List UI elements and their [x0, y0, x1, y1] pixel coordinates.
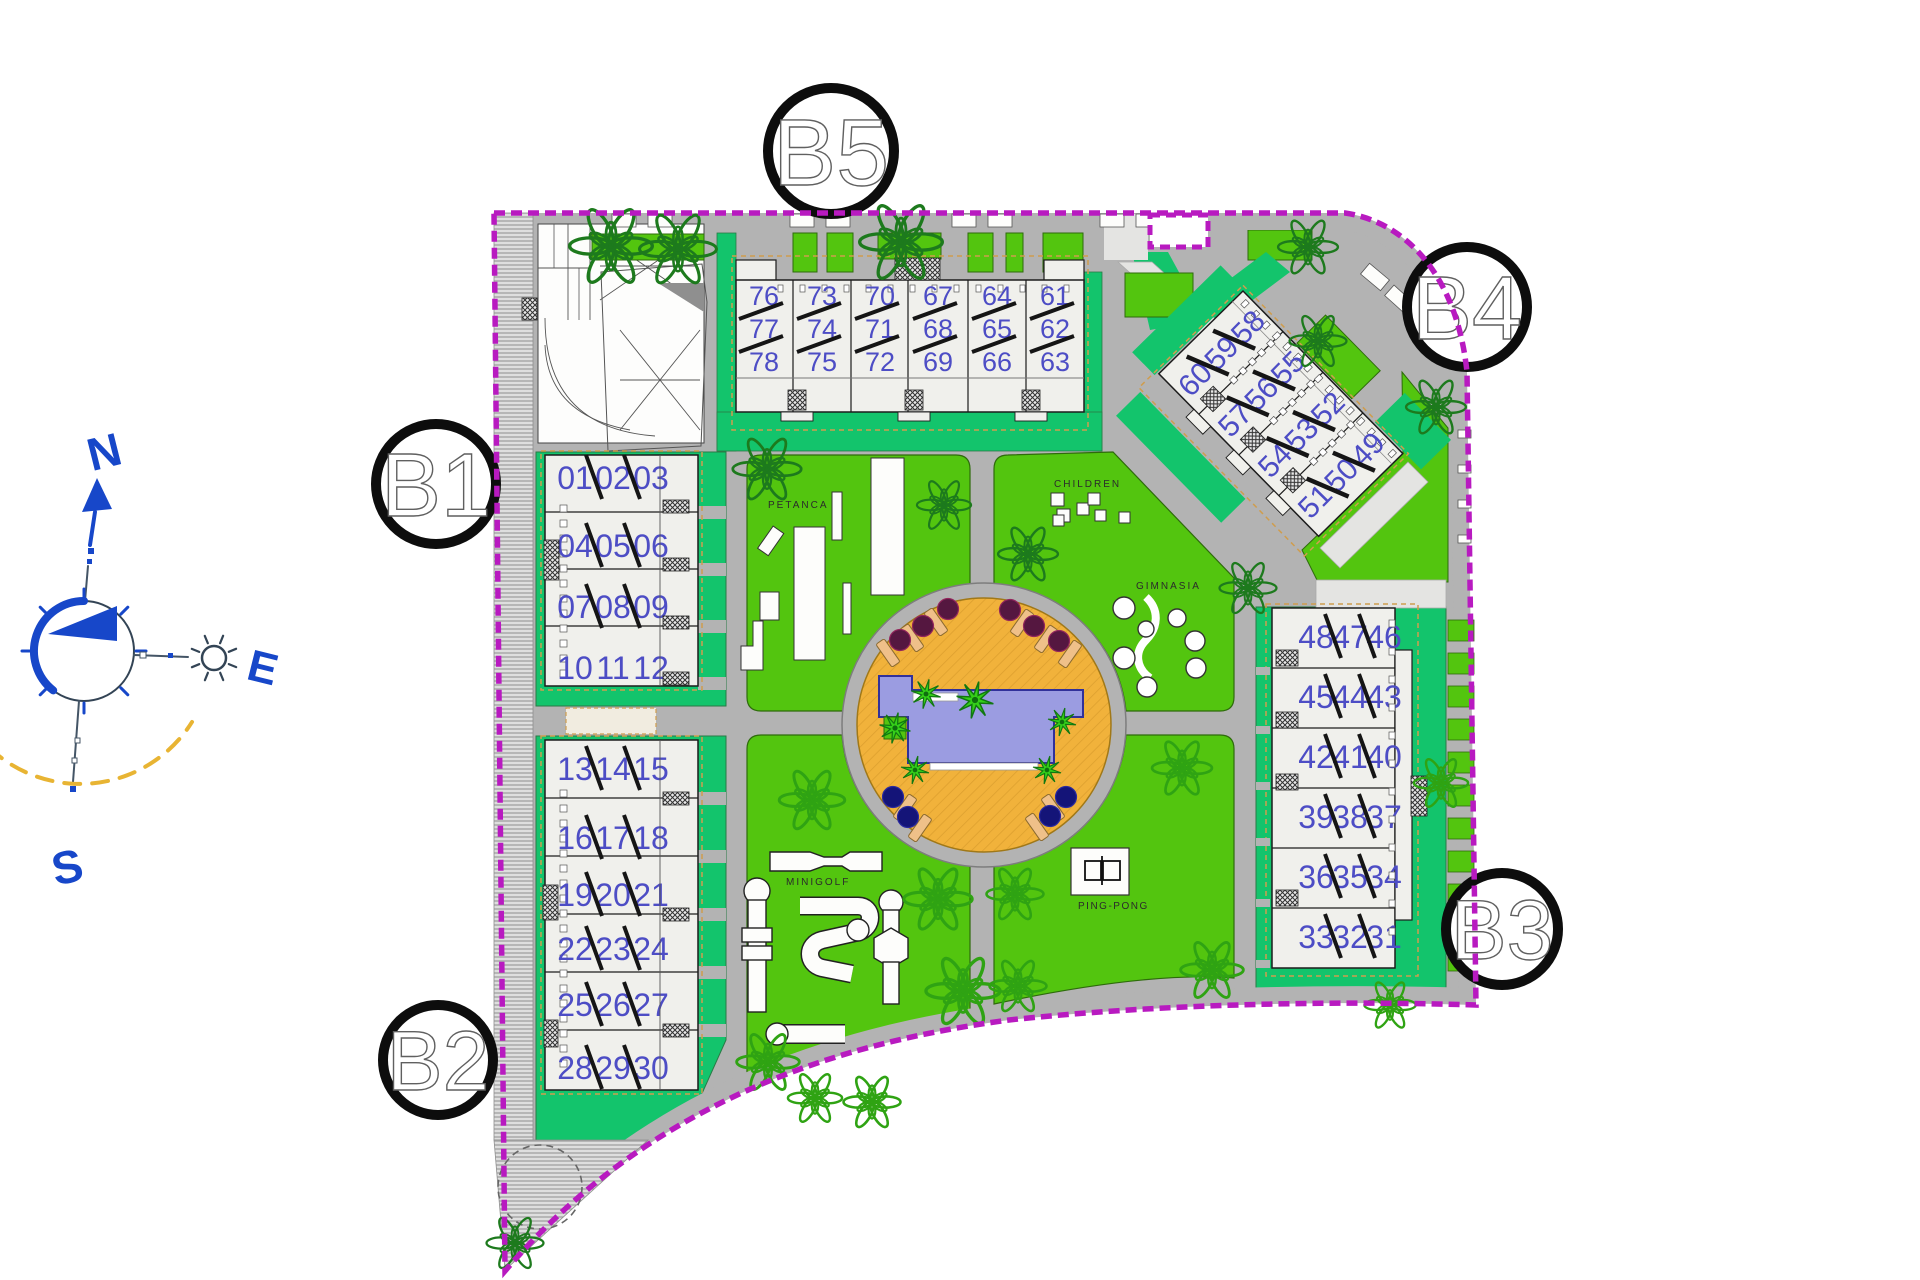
svg-text:22: 22 — [557, 931, 593, 967]
svg-text:MINIGOLF: MINIGOLF — [786, 877, 850, 888]
svg-text:01: 01 — [557, 460, 593, 496]
svg-text:10: 10 — [557, 650, 593, 686]
svg-text:B1: B1 — [381, 436, 491, 536]
svg-text:04: 04 — [557, 528, 593, 564]
svg-text:69: 69 — [923, 347, 953, 377]
svg-text:63: 63 — [1040, 347, 1070, 377]
svg-text:B4: B4 — [1412, 259, 1522, 359]
svg-text:19: 19 — [557, 877, 593, 913]
svg-text:GIMNASIA: GIMNASIA — [1136, 581, 1201, 592]
svg-text:CHILDREN: CHILDREN — [1054, 479, 1121, 490]
svg-text:66: 66 — [982, 347, 1012, 377]
svg-text:07: 07 — [557, 589, 593, 625]
svg-text:PETANCA: PETANCA — [768, 500, 829, 511]
svg-text:16: 16 — [557, 820, 593, 856]
svg-text:B5: B5 — [773, 100, 889, 206]
svg-text:72: 72 — [865, 347, 895, 377]
svg-text:75: 75 — [807, 347, 837, 377]
svg-text:PING-PONG: PING-PONG — [1078, 901, 1149, 912]
svg-text:28: 28 — [557, 1050, 593, 1086]
svg-text:B3: B3 — [1451, 883, 1554, 977]
svg-text:B2: B2 — [387, 1014, 490, 1108]
svg-text:25: 25 — [557, 987, 593, 1023]
svg-text:13: 13 — [557, 751, 593, 787]
svg-text:78: 78 — [749, 347, 779, 377]
svg-text:11: 11 — [596, 650, 629, 686]
